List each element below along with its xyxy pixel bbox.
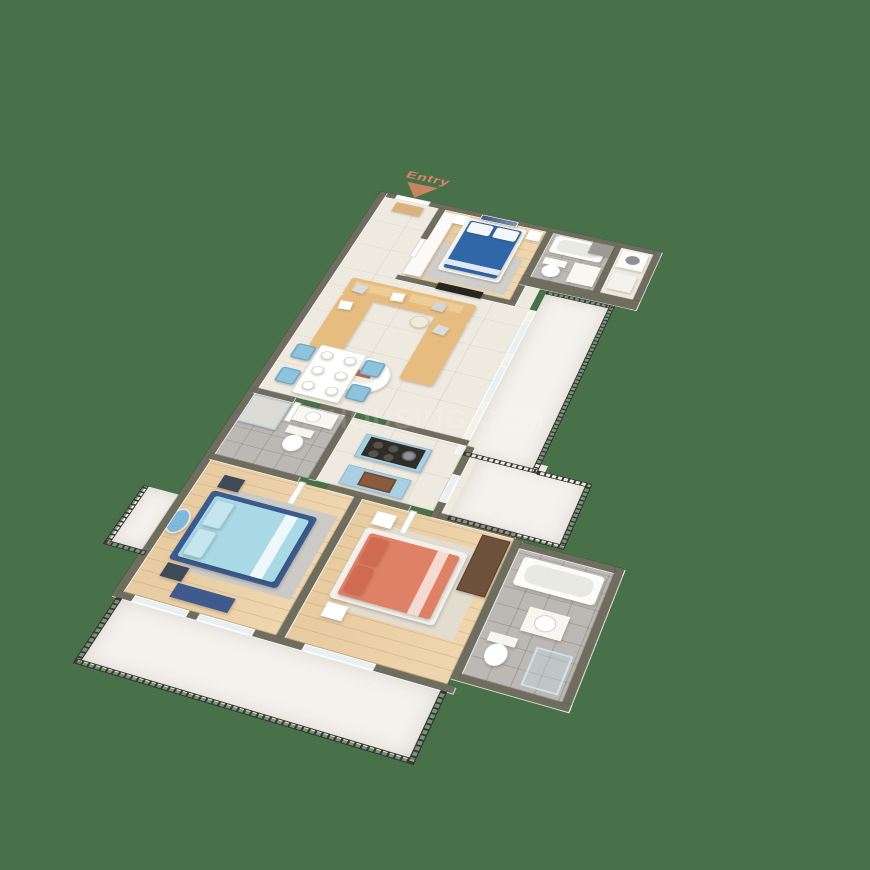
apartment-plan: Entry xyxy=(49,164,754,815)
floor-plan-scene: Entry xyxy=(0,0,870,870)
watermark: HOUSING.COM xyxy=(328,404,547,435)
